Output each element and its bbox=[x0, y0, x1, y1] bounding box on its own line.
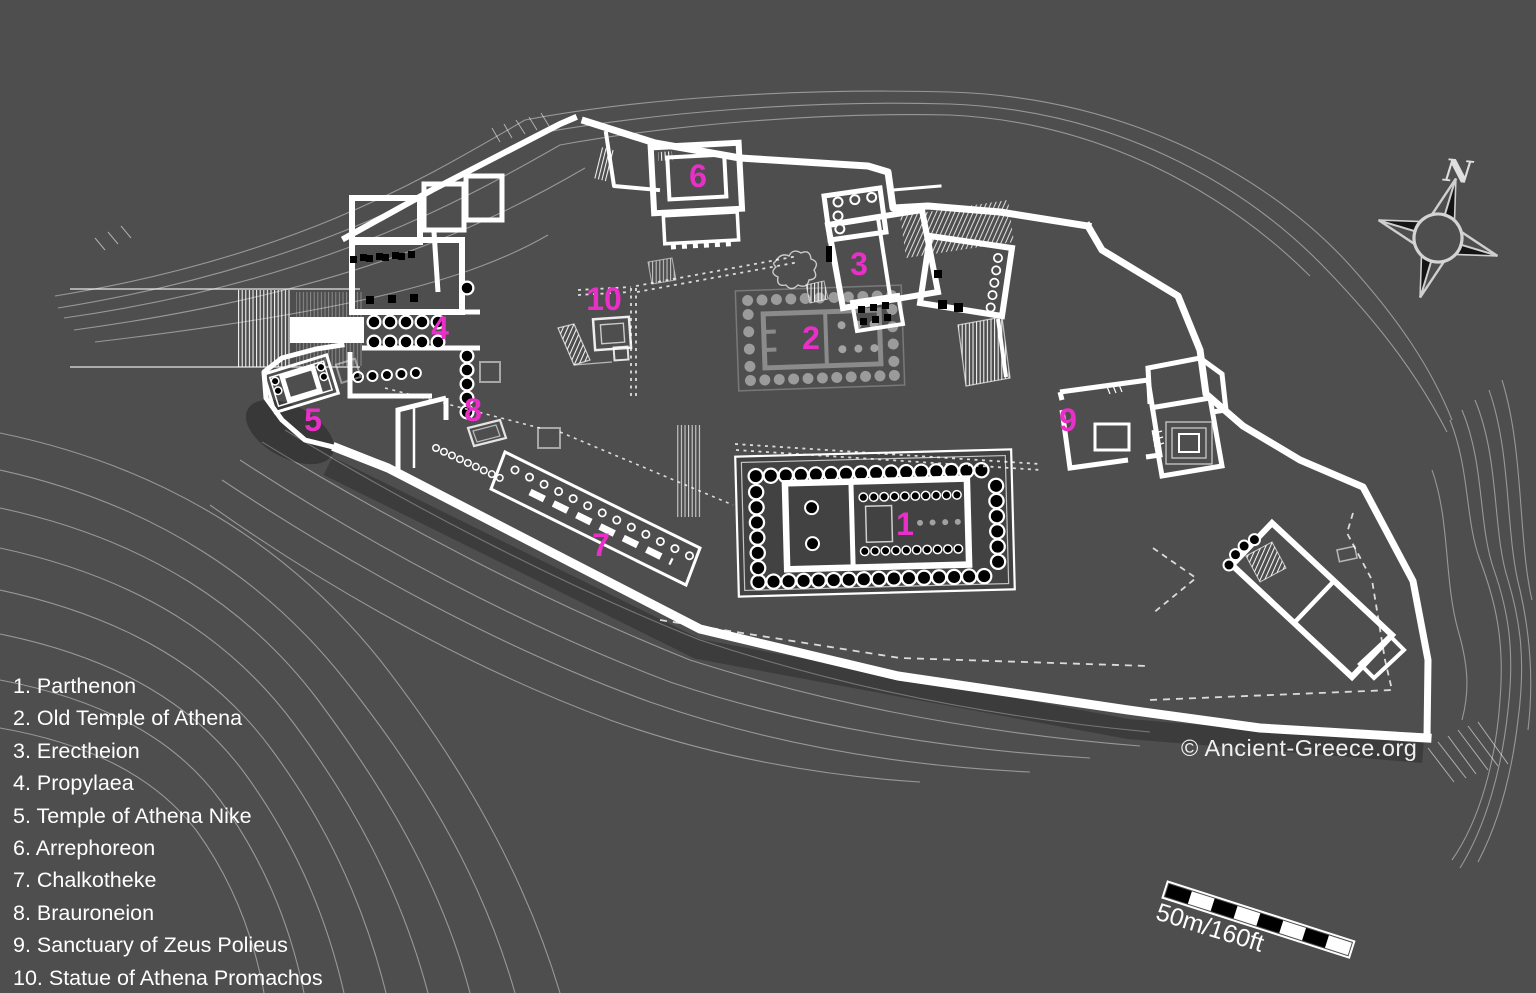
map-marker-8: 8 bbox=[464, 394, 482, 426]
southeast-building-plan bbox=[1229, 523, 1404, 678]
athena-promachos-base bbox=[558, 317, 631, 365]
parthenon-plan bbox=[735, 449, 1015, 596]
legend-item-old-temple: 2. Old Temple of Athena bbox=[13, 702, 323, 734]
acropolis-map-page: 1. Parthenon 2. Old Temple of Athena 3. … bbox=[0, 0, 1536, 993]
compass-rose bbox=[1363, 163, 1513, 313]
legend-item-propylaea: 4. Propylaea bbox=[13, 767, 323, 799]
legend-item-parthenon: 1. Parthenon bbox=[13, 670, 323, 702]
map-marker-7: 7 bbox=[592, 529, 610, 561]
credit-text: © Ancient-Greece.org bbox=[1181, 735, 1417, 762]
legend-item-nike: 5. Temple of Athena Nike bbox=[13, 800, 323, 832]
brauroneion-plan bbox=[398, 398, 506, 478]
map-marker-3: 3 bbox=[850, 248, 868, 280]
map-marker-10: 10 bbox=[586, 283, 622, 315]
legend-item-arrephoreon: 6. Arrephoreon bbox=[13, 832, 323, 864]
legend-item-promachos: 10. Statue of Athena Promachos bbox=[13, 962, 323, 993]
compass-north-label: N bbox=[1442, 153, 1474, 192]
terrace-steps-hatch bbox=[806, 281, 828, 303]
terrace-retaining-hatch bbox=[676, 425, 702, 517]
legend-item-zeus: 9. Sanctuary of Zeus Polieus bbox=[13, 929, 323, 961]
map-marker-9: 9 bbox=[1059, 404, 1077, 436]
map-marker-5: 5 bbox=[304, 404, 322, 436]
legend-item-brauroneion: 8. Brauroneion bbox=[13, 897, 323, 929]
map-marker-1: 1 bbox=[896, 508, 914, 540]
map-marker-6: 6 bbox=[689, 160, 707, 192]
legend-item-erectheion: 3. Erectheion bbox=[13, 735, 323, 767]
map-marker-4: 4 bbox=[431, 312, 449, 344]
fortification-wall bbox=[264, 118, 1428, 738]
altar-steps-hatch bbox=[958, 317, 1010, 386]
map-marker-2: 2 bbox=[802, 322, 820, 354]
legend-item-chalkotheke: 7. Chalkotheke bbox=[13, 864, 323, 896]
legend: 1. Parthenon 2. Old Temple of Athena 3. … bbox=[13, 670, 323, 993]
